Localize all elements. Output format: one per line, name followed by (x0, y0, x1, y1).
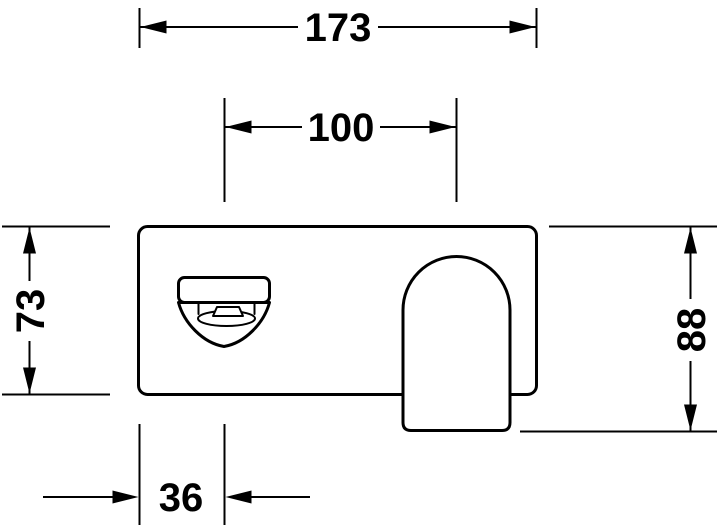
dimension-overall-height: 88 (520, 227, 717, 432)
dimension-edge-to-spout: 36 (43, 424, 310, 525)
lever-handle-outline (403, 256, 510, 430)
arrowhead-left-icon (141, 21, 167, 34)
arrowhead-down-icon (23, 368, 36, 394)
dimension-label-overall-height: 88 (670, 308, 714, 353)
arrowhead-down-icon (684, 405, 697, 431)
arrowhead-right-icon (430, 121, 456, 134)
arrowhead-left-icon (226, 121, 252, 134)
dimension-label-edge-to-spout: 36 (159, 476, 204, 520)
spout-body-outline (179, 278, 270, 303)
dimension-plate-height: 73 (2, 227, 110, 395)
dimension-label-spout-to-handle: 100 (308, 106, 375, 150)
dimension-label-overall-width: 173 (305, 6, 372, 50)
spout-aerator-outlet (213, 307, 243, 316)
arrowhead-right-icon (510, 21, 536, 34)
dimension-label-plate-height: 73 (9, 289, 53, 334)
technical-drawing-canvas: 173 100 73 (0, 0, 720, 527)
arrowhead-up-icon (23, 228, 36, 254)
arrowhead-up-icon (684, 228, 697, 254)
arrowhead-left-icon (226, 491, 252, 504)
technical-drawing-page: 173 100 73 (0, 0, 720, 527)
dimension-spout-to-handle: 100 (225, 98, 457, 202)
arrowhead-right-icon (113, 491, 139, 504)
dimension-overall-width: 173 (140, 6, 537, 50)
